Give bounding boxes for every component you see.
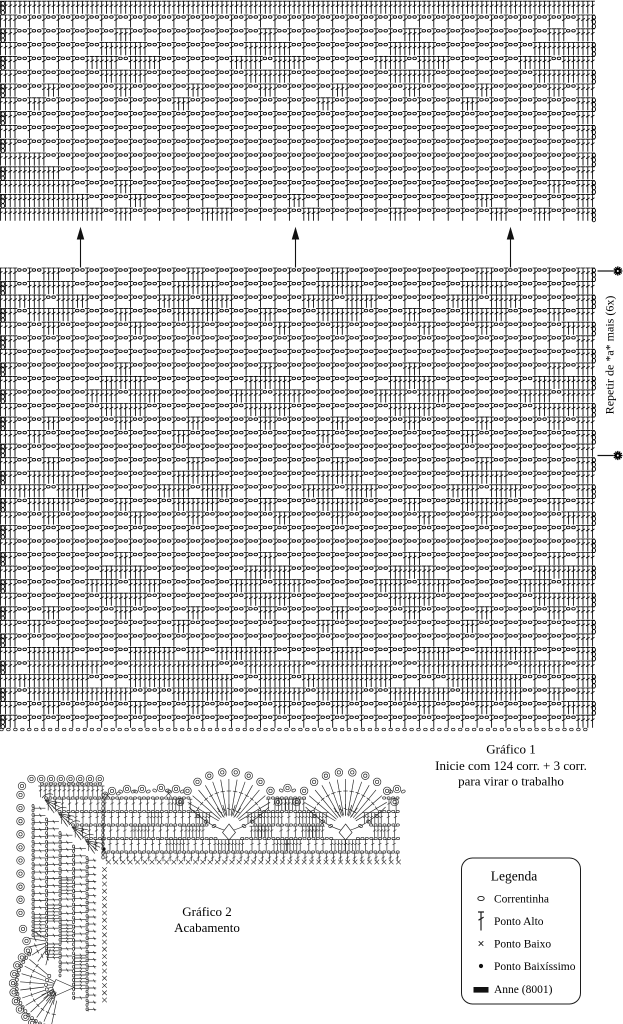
svg-text:Legenda: Legenda	[491, 869, 537, 884]
svg-text:Ponto Baixíssimo: Ponto Baixíssimo	[494, 961, 576, 973]
svg-text:Repetir de *a* mais (6x): Repetir de *a* mais (6x)	[603, 296, 617, 415]
svg-text:Acabamento: Acabamento	[174, 920, 240, 935]
svg-text:Gráfico 2: Gráfico 2	[182, 904, 231, 919]
svg-text:Correntinha: Correntinha	[494, 894, 549, 906]
svg-text:para virar o trabalho: para virar o trabalho	[458, 774, 564, 789]
svg-text:Anne (8001): Anne (8001)	[494, 984, 553, 996]
svg-text:Ponto Baixo: Ponto Baixo	[494, 939, 551, 951]
svg-text:Ponto Alto: Ponto Alto	[494, 916, 544, 928]
svg-text:Inicie com 124 corr. + 3 corr.: Inicie com 124 corr. + 3 corr.	[435, 758, 587, 773]
svg-text:Gráfico 1: Gráfico 1	[486, 742, 535, 757]
